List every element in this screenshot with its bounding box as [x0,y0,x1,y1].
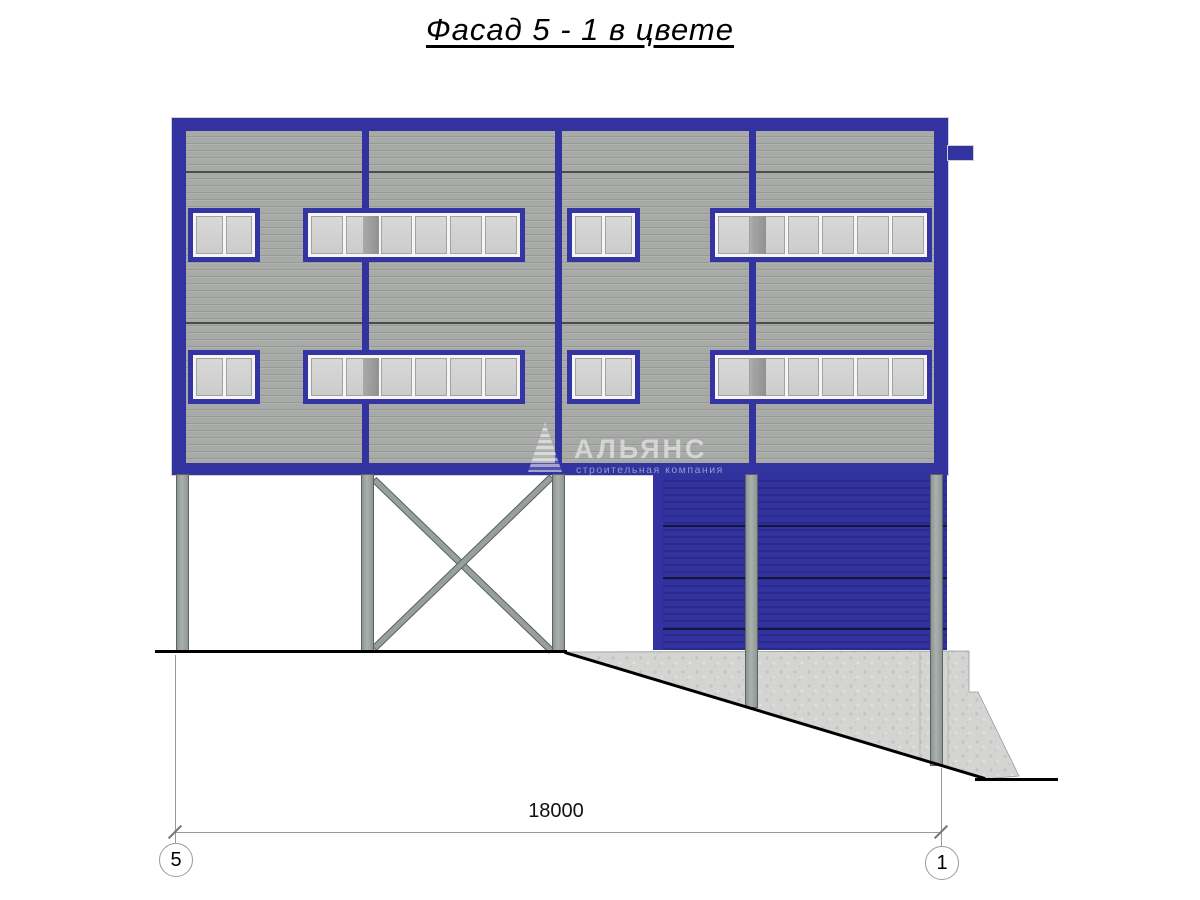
window-sash [715,355,927,399]
window-pane [892,358,924,396]
drawing-canvas: Фасад 5 - 1 в цвете [0,0,1200,900]
steel-column [361,474,374,651]
window-pane [575,216,602,254]
window-sash [572,355,635,399]
window-pane [718,358,750,396]
window-pane [822,216,854,254]
window-sash [308,355,520,399]
extension-line-axis-1 [941,768,942,848]
axis-circle-1: 1 [925,846,959,880]
gate-section-line [663,525,947,527]
window-sash [308,213,520,257]
ground-line-upper [155,650,567,653]
window-pane [450,358,482,396]
window-pane [575,358,602,396]
frame-mullion [749,131,756,463]
window-pane [311,358,343,396]
window-sash [193,213,255,257]
gate-frame-post [653,475,663,650]
window-sash [715,213,927,257]
gate-section-line [663,628,947,630]
window-sash [572,213,635,257]
building-facade [172,118,948,475]
axis-circle-5: 5 [159,843,193,877]
roof-gutter-tab [948,146,973,160]
window-shadow-band [750,358,766,396]
dimension-value: 18000 [480,800,632,823]
window-pane [718,216,750,254]
frame-mullion [555,131,562,463]
window-6pane [303,208,525,262]
dimension-line [175,832,941,833]
window-sash [193,355,255,399]
frame-mullion [362,131,369,463]
window-pane [226,358,253,396]
window-pane [485,358,517,396]
window-pane [196,216,223,254]
window-pane [857,216,889,254]
window-6pane [710,350,932,404]
window-pane [788,216,820,254]
window-pane [857,358,889,396]
window-pane [226,216,253,254]
steel-column [930,474,943,766]
window-pane [788,358,820,396]
steel-column [745,474,758,708]
watermark-company-name: АЛЬЯНС [574,434,708,465]
axis-label-5: 5 [170,849,181,872]
steel-column [552,474,565,651]
gate-bay [653,475,947,650]
concrete-retaining-wall [540,640,1070,790]
window-pane [485,216,517,254]
gate-panels [663,475,947,650]
window-pane [605,358,632,396]
extension-line-axis-5 [175,655,176,845]
window-pane [311,216,343,254]
watermark-tagline: строительная компания [576,464,724,476]
window-2pane [188,350,260,404]
window-pane [196,358,223,396]
window-pane [415,216,447,254]
window-2pane [567,208,640,262]
ground-line-lower [975,778,1058,781]
window-pane [605,216,632,254]
window-shadow-band [750,216,766,254]
window-6pane [303,350,525,404]
window-pane [415,358,447,396]
window-2pane [567,350,640,404]
window-pane [450,216,482,254]
window-pane [381,358,413,396]
drawing-title: Фасад 5 - 1 в цвете [180,12,980,48]
window-pane [822,358,854,396]
window-shadow-band [363,358,379,396]
window-pane [381,216,413,254]
window-pane [892,216,924,254]
steel-column [176,474,189,651]
window-6pane [710,208,932,262]
window-shadow-band [363,216,379,254]
axis-label-1: 1 [936,852,947,875]
gate-section-line [663,577,947,579]
window-2pane [188,208,260,262]
